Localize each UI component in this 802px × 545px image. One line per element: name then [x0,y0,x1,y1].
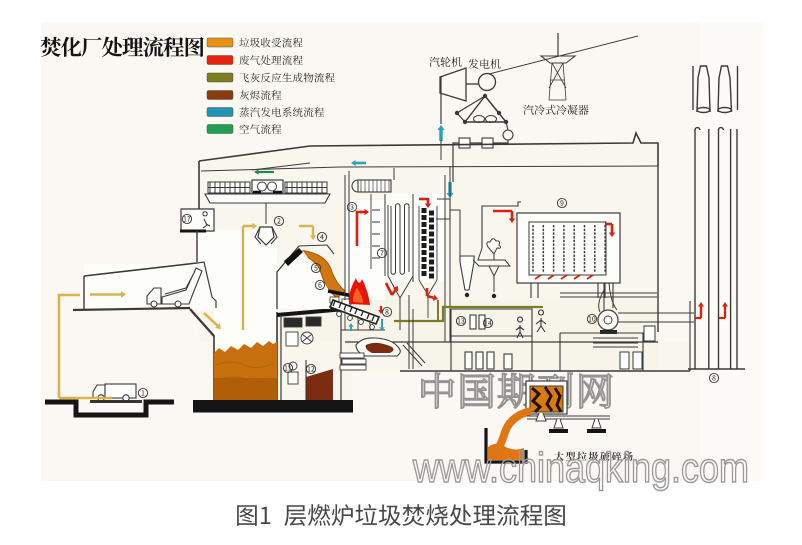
svg-text:www.chinaqking.com: www.chinaqking.com [412,444,749,491]
